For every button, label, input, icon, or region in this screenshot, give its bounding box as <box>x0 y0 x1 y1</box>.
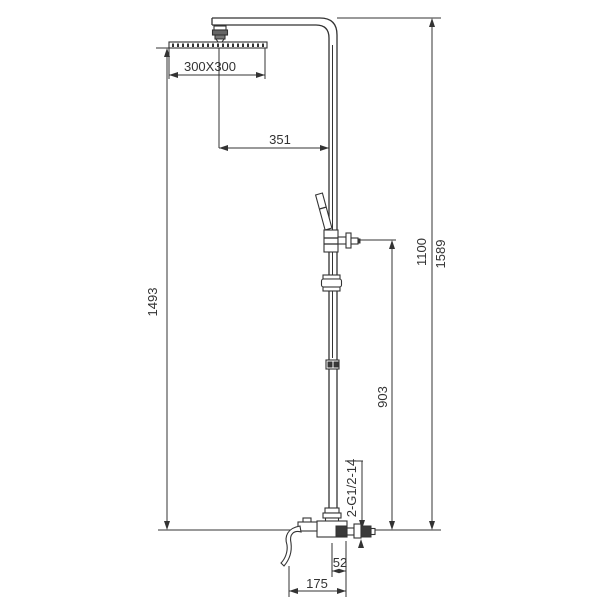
shower-technical-drawing: 300X300 351 1493 903 1100 1589 2-G1/2-14… <box>0 0 600 600</box>
label-inlet-thread: 2-G1/2-14 <box>344 459 359 518</box>
arrow-up-icon <box>389 240 395 249</box>
wall-connector-stem <box>371 529 375 535</box>
rain-shower-head <box>169 26 267 48</box>
wall-connector-flange <box>354 524 361 538</box>
hand-shower-assembly <box>316 193 360 369</box>
arrow-down-icon <box>429 521 435 530</box>
arm-inner-line <box>212 25 329 520</box>
ball-joint-collar <box>215 35 225 39</box>
union-nut-top <box>325 508 339 513</box>
label-pipe-wall-offset: 52 <box>333 555 347 570</box>
holder-knob-neck <box>338 237 346 244</box>
holder-bracket <box>324 230 338 252</box>
mixer-cartridge <box>336 526 347 536</box>
mixer-lever-handle <box>281 526 301 566</box>
pipe-joint-screw-right <box>334 362 338 367</box>
arrow-left-icon <box>219 145 228 151</box>
arm-outer-line <box>212 18 337 520</box>
arrow-right-icon <box>337 588 346 594</box>
arrow-up-icon <box>429 18 435 27</box>
label-overall-height: 1589 <box>433 240 448 269</box>
arrow-right-icon <box>256 72 265 78</box>
label-bracket-height: 903 <box>375 386 390 408</box>
pipe-joint-screw-left <box>328 362 332 367</box>
label-head-arm-offset: 351 <box>269 132 291 147</box>
label-spout-projection: 175 <box>306 576 328 591</box>
label-left-overall-height: 1493 <box>145 288 160 317</box>
extension-lines <box>156 18 441 597</box>
slide-bracket-bottom <box>323 287 340 291</box>
holder-knob-stem <box>351 238 358 244</box>
wall-connector-nut <box>361 526 371 537</box>
arrow-left-icon <box>169 72 178 78</box>
wall-connector-neck <box>347 528 354 535</box>
dimension-lines <box>164 18 435 594</box>
arrow-down-icon <box>164 521 170 530</box>
label-head-size: 300X300 <box>184 59 236 74</box>
label-handshower-height: 1100 <box>414 238 429 266</box>
slide-bracket-top <box>323 275 340 279</box>
arrow-down-icon <box>389 521 395 530</box>
union-nut-mid <box>323 513 341 518</box>
ball-joint-nut <box>214 26 226 30</box>
arrow-left-icon <box>289 588 298 594</box>
slide-bracket-body <box>322 279 342 287</box>
shower-column <box>212 18 337 520</box>
dimension-labels: 300X300 351 1493 903 1100 1589 2-G1/2-14… <box>145 59 448 591</box>
holder-knob-tip <box>358 239 360 243</box>
holder-knob-flange <box>346 233 351 248</box>
drawing-svg: 300X300 351 1493 903 1100 1589 2-G1/2-14… <box>0 0 600 600</box>
arrow-right-icon <box>320 145 329 151</box>
arrow-up-icon <box>358 539 364 548</box>
mixer-valve <box>281 508 375 566</box>
ball-joint <box>213 30 228 35</box>
